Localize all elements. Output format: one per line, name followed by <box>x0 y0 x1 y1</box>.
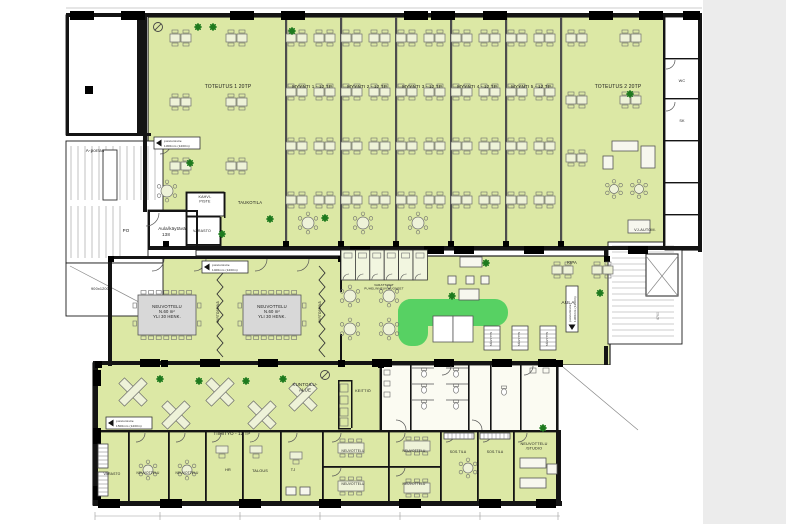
sofa <box>520 458 546 468</box>
window-pier <box>431 11 455 20</box>
desk-cluster <box>451 142 461 150</box>
plant-icon <box>626 90 634 98</box>
window-pier <box>492 359 512 367</box>
window-pier <box>683 11 700 20</box>
desk-cluster <box>286 88 296 96</box>
toilet <box>422 371 427 377</box>
plant-icon <box>596 289 604 297</box>
sofa <box>300 487 310 495</box>
desk-cluster <box>451 88 461 96</box>
desk-cluster <box>170 98 180 106</box>
plant-icon <box>266 215 274 223</box>
desk-cluster <box>631 34 641 42</box>
toilet <box>454 387 459 393</box>
room-label-line: PISTE <box>199 199 211 203</box>
plant-icon <box>194 23 202 31</box>
exit-route-sign: poistumistie1400mm (1200m) <box>202 261 248 273</box>
sofa <box>520 478 546 488</box>
wall <box>663 58 700 59</box>
desk-cluster <box>506 142 516 150</box>
room-label: TOTEUTUS 2 20TP <box>595 84 642 90</box>
desk-cluster <box>424 34 434 42</box>
round-table <box>383 290 395 302</box>
column <box>556 360 563 367</box>
desk-cluster <box>490 88 500 96</box>
desk-cluster <box>396 196 406 204</box>
window-pier <box>239 499 261 508</box>
room-label: NEUVOTTELU <box>403 482 426 486</box>
desk-cluster <box>352 34 362 42</box>
wall <box>338 428 351 430</box>
exit-route-sign: poistumistie1500mm (1200m) <box>106 417 152 429</box>
zone-open-office-north <box>148 17 700 250</box>
phone-booth <box>413 250 427 280</box>
plant-icon <box>288 27 296 35</box>
desk-cluster <box>506 196 516 204</box>
desk-cluster <box>380 196 390 204</box>
column <box>604 256 610 262</box>
room-label: TOTEUTUS 1 20TP <box>205 84 252 90</box>
column <box>503 241 509 247</box>
room-label: MYYNTI 3 - 12 TP <box>402 84 442 89</box>
desk-cluster <box>369 34 379 42</box>
desk-cluster <box>577 34 587 42</box>
window-pier <box>98 499 120 508</box>
wall <box>604 346 608 365</box>
desk-cluster <box>237 98 247 106</box>
wall <box>280 432 282 502</box>
desk-cluster <box>325 196 335 204</box>
desk-cluster <box>314 142 324 150</box>
window-pier <box>93 428 101 444</box>
desk-cluster <box>297 196 307 204</box>
desk-cluster <box>286 196 296 204</box>
wall <box>556 363 558 430</box>
round-table <box>161 185 173 197</box>
window-pier <box>93 370 101 386</box>
wall <box>186 216 220 218</box>
room-label: SÄILYTYS <box>489 332 493 346</box>
desk-cluster <box>462 142 472 150</box>
room-label: VJ-AUTOM. <box>634 228 656 232</box>
desk-cluster <box>545 142 555 150</box>
toilet <box>422 403 427 409</box>
desk <box>290 452 302 459</box>
desk-cluster <box>506 34 516 42</box>
desk-cluster <box>297 34 307 42</box>
desk-cluster <box>462 34 472 42</box>
column <box>163 241 169 247</box>
desk-cluster <box>396 34 406 42</box>
desk-cluster <box>545 196 555 204</box>
sofa <box>612 141 638 151</box>
room-label: TALOUS <box>252 469 268 473</box>
room-label: NEUVOTTELU <box>137 471 160 475</box>
desk-cluster <box>369 88 379 96</box>
desk-cluster <box>226 162 236 170</box>
room-label: SIIRTOSEINÄ <box>216 300 220 322</box>
desk-cluster <box>226 98 236 106</box>
locker-bank <box>444 433 474 439</box>
sofa <box>460 257 482 267</box>
room-label: 138 <box>162 232 170 237</box>
round-table <box>357 217 369 229</box>
desk-cluster <box>545 34 555 42</box>
desk-cluster <box>517 88 527 96</box>
desk-cluster <box>396 88 406 96</box>
desk-cluster <box>566 154 576 162</box>
desk-cluster <box>325 34 335 42</box>
exit-sign-text: 1500mm (1200m) <box>116 424 142 428</box>
desk-cluster <box>577 96 587 104</box>
window-pier <box>281 11 305 20</box>
window-pier <box>140 359 160 367</box>
wall <box>128 432 130 502</box>
toilet <box>502 389 507 395</box>
plant-icon <box>321 214 329 222</box>
desk-cluster <box>462 88 472 96</box>
wall <box>186 192 188 246</box>
column <box>393 241 399 247</box>
room-label: 900x1200 <box>91 287 109 291</box>
sofa <box>481 276 489 284</box>
phone-booth <box>384 250 398 280</box>
wall <box>513 432 515 502</box>
desk-cluster <box>517 142 527 150</box>
desk-cluster <box>517 196 527 204</box>
desk-cluster <box>603 266 613 274</box>
room-label: TAUKOTILA <box>238 200 262 205</box>
exit-sign-text: 1300mm (1200m) <box>164 144 190 148</box>
exit-sign-text: poistumistie <box>212 263 230 267</box>
desk-cluster <box>237 162 247 170</box>
desk-cluster <box>380 34 390 42</box>
wall <box>410 365 412 431</box>
wall <box>66 13 69 135</box>
room-label: TIIMITYÖ - 12 TP <box>214 431 251 436</box>
room-label: HR <box>225 468 231 472</box>
exit-sign-text: poistumistie <box>164 139 182 143</box>
sofa <box>459 289 479 300</box>
window-pier <box>589 11 613 20</box>
desk-cluster <box>451 34 461 42</box>
wall <box>148 210 196 212</box>
desk-cluster <box>631 96 641 104</box>
desk-cluster <box>181 34 191 42</box>
toilet <box>454 371 459 377</box>
desk-cluster <box>424 196 434 204</box>
window-pier <box>70 11 94 20</box>
sofa <box>603 156 613 169</box>
wall <box>137 15 147 133</box>
wall <box>351 380 353 428</box>
room-label: SÄILYTYS <box>517 332 521 346</box>
floor-plan-drawing: poistumistie1300mm (1200m)poistumistie14… <box>0 0 786 524</box>
window-pier <box>479 499 501 508</box>
plant-icon <box>186 159 194 167</box>
desk-cluster <box>325 142 335 150</box>
wall <box>338 380 351 382</box>
wall <box>490 365 492 431</box>
desk-cluster <box>424 142 434 150</box>
plant-icon <box>242 377 250 385</box>
desk-cluster <box>534 196 544 204</box>
stair-rail <box>103 150 117 200</box>
room-label: MYYNTI 2 - 12 TP <box>347 84 387 89</box>
desk-cluster <box>435 196 445 204</box>
sofa <box>286 487 296 495</box>
wall <box>168 432 170 502</box>
window-pier <box>628 246 648 254</box>
reception-desk <box>453 316 473 342</box>
room-label: KAHVI-PISTE <box>199 195 213 203</box>
desk-cluster <box>341 196 351 204</box>
desk-cluster <box>490 34 500 42</box>
wall <box>663 98 700 99</box>
room-label: KEITTIÖ <box>355 389 371 393</box>
desk-cluster <box>369 196 379 204</box>
desk-cluster <box>407 88 417 96</box>
sofa <box>466 276 474 284</box>
desk-cluster <box>534 88 544 96</box>
desk-cluster <box>479 34 489 42</box>
wall <box>205 432 207 502</box>
wall <box>380 365 382 431</box>
room-label: SOS.TILA <box>487 450 504 454</box>
desk-cluster <box>479 142 489 150</box>
plant-icon <box>279 375 287 383</box>
phone-booth <box>355 250 369 280</box>
round-table <box>302 217 314 229</box>
window-pier <box>200 359 220 367</box>
desk-cluster <box>286 142 296 150</box>
desk-cluster <box>297 142 307 150</box>
desk-cluster <box>435 34 445 42</box>
exit-sign-text: 1400mm (1200m) <box>212 268 238 272</box>
desk-cluster <box>517 34 527 42</box>
desk-cluster <box>407 34 417 42</box>
desk-cluster <box>462 196 472 204</box>
window-pier <box>639 11 663 20</box>
desk-cluster <box>407 142 417 150</box>
room-label-line: /STUDIO <box>526 447 542 451</box>
room-label-line: PUHELINNEUV.HUONEET <box>364 287 403 291</box>
desk-cluster <box>552 266 562 274</box>
desk-cluster <box>435 142 445 150</box>
window-pier <box>399 499 421 508</box>
desk-cluster <box>181 98 191 106</box>
desk-cluster <box>226 34 236 42</box>
window-pier <box>434 359 454 367</box>
wall <box>663 182 700 183</box>
room-box <box>560 365 700 508</box>
room-label: SÄILYTYS <box>545 332 549 346</box>
wall <box>186 244 220 246</box>
column <box>108 256 114 262</box>
wall <box>148 210 150 248</box>
wall <box>520 365 522 431</box>
room-label-line: YLI 30 HENK. <box>258 314 286 319</box>
plant-icon <box>156 375 164 383</box>
desk-cluster <box>352 88 362 96</box>
column <box>338 241 344 247</box>
desk-cluster <box>396 142 406 150</box>
desk-cluster <box>341 34 351 42</box>
desk-cluster <box>341 142 351 150</box>
room-label: A-porras <box>86 148 105 153</box>
room-label: SOS.TILA <box>450 450 467 454</box>
desk-cluster <box>380 88 390 96</box>
room-label: NEUVOTTELU <box>342 482 365 486</box>
partition-wall <box>340 17 342 246</box>
partition-wall <box>285 17 287 246</box>
desk-cluster <box>506 88 516 96</box>
window-pier <box>258 359 278 367</box>
wall <box>186 192 224 194</box>
wall <box>440 432 442 502</box>
window-pier <box>160 499 182 508</box>
round-table <box>383 323 395 335</box>
plant-icon <box>448 292 456 300</box>
exit-sign-text: poistumistie <box>116 419 134 423</box>
window-pier <box>538 359 556 367</box>
partition-wall <box>450 17 452 246</box>
phone-booth <box>399 250 413 280</box>
image-margin <box>703 0 786 524</box>
room-label: VARASTO <box>104 472 121 476</box>
wall <box>468 365 470 431</box>
room-label: NEUVOTTELU <box>342 449 365 453</box>
round-table <box>610 185 619 194</box>
room-label: MYYNTI 1 - 12 TP <box>292 84 332 89</box>
wall <box>224 192 226 218</box>
desk-cluster <box>407 196 417 204</box>
desk-cluster <box>325 88 335 96</box>
room-label: NEUVOTTELU <box>176 471 199 475</box>
desk-cluster <box>592 266 602 274</box>
round-table <box>463 463 473 473</box>
wall <box>338 380 340 428</box>
desk-cluster <box>620 96 630 104</box>
room-label: SK <box>679 119 685 123</box>
desk-cluster <box>577 154 587 162</box>
column <box>161 360 168 367</box>
desk-cluster <box>314 34 324 42</box>
window-pier <box>524 246 544 254</box>
reception-desk <box>433 316 453 342</box>
desk-cluster <box>566 96 576 104</box>
room-label: WC <box>679 79 686 83</box>
window-pier <box>121 11 145 20</box>
desk-cluster <box>435 88 445 96</box>
desk-cluster <box>170 34 180 42</box>
column <box>558 241 564 247</box>
wall <box>110 256 342 259</box>
desk-cluster <box>424 88 434 96</box>
wall <box>108 256 112 366</box>
desk-cluster <box>170 162 180 170</box>
partition-wall <box>560 17 562 246</box>
column <box>85 86 93 94</box>
desk <box>250 446 262 453</box>
toilet <box>422 387 427 393</box>
wall <box>66 133 151 136</box>
wall <box>242 432 244 502</box>
desk-cluster <box>566 34 576 42</box>
round-table <box>344 323 356 335</box>
wall <box>663 140 700 141</box>
wall <box>477 432 479 502</box>
window-pier <box>483 11 507 20</box>
desk-cluster <box>297 88 307 96</box>
desk-cluster <box>620 34 630 42</box>
reception-desk-highlight <box>398 299 428 346</box>
desk-cluster <box>545 88 555 96</box>
column <box>95 361 102 368</box>
plant-icon <box>195 377 203 385</box>
desk-cluster <box>286 34 296 42</box>
desk-cluster <box>479 196 489 204</box>
desk-cluster <box>380 142 390 150</box>
room-label: AULA <box>561 300 575 306</box>
partition-wall <box>505 17 507 246</box>
desk <box>216 446 228 453</box>
plant-icon <box>482 259 490 267</box>
wall <box>322 466 440 468</box>
room-label: PO <box>123 228 130 233</box>
desk-cluster <box>314 196 324 204</box>
toilet <box>454 403 459 409</box>
room-label: MYYNTI 5 - 12 TP <box>511 84 551 89</box>
locker-bank <box>480 433 510 439</box>
sofa <box>448 276 456 284</box>
exit-sign-text: poistumistie <box>568 304 572 322</box>
window-pier <box>454 246 474 254</box>
room-label-line: KUNTOILU- <box>293 382 318 387</box>
phone-booth <box>370 250 384 280</box>
room-label: NEUVOTTELU <box>403 449 426 453</box>
column <box>448 241 454 247</box>
desk-cluster <box>490 142 500 150</box>
desk-cluster <box>369 142 379 150</box>
desk-cluster <box>352 142 362 150</box>
room-label: 4760 <box>656 312 660 320</box>
room-label: KIPA <box>567 260 577 265</box>
room-label-line: YLI 30 HENK. <box>153 314 181 319</box>
plant-icon <box>539 424 547 432</box>
room-label-line: NEUVOTTELU <box>520 442 547 446</box>
desk-cluster <box>451 196 461 204</box>
sofa <box>547 464 557 474</box>
room-label: TJ <box>291 468 296 472</box>
room-label: MYYNTI 4 - 12 TP <box>457 84 497 89</box>
sofa <box>641 146 655 168</box>
phone-booth <box>341 250 355 280</box>
wall <box>663 214 700 215</box>
exit-route-sign: poistumistie1300mm (1200m) <box>566 286 578 332</box>
round-table <box>344 290 356 302</box>
desk-cluster <box>534 34 544 42</box>
column <box>338 360 345 367</box>
column <box>378 362 384 368</box>
room-label: VARASTO <box>193 229 211 233</box>
desk-cluster <box>479 88 489 96</box>
round-table <box>635 185 644 194</box>
desk-cluster <box>352 196 362 204</box>
room-box <box>66 15 148 135</box>
window-pier <box>230 11 254 20</box>
plant-icon <box>209 23 217 31</box>
